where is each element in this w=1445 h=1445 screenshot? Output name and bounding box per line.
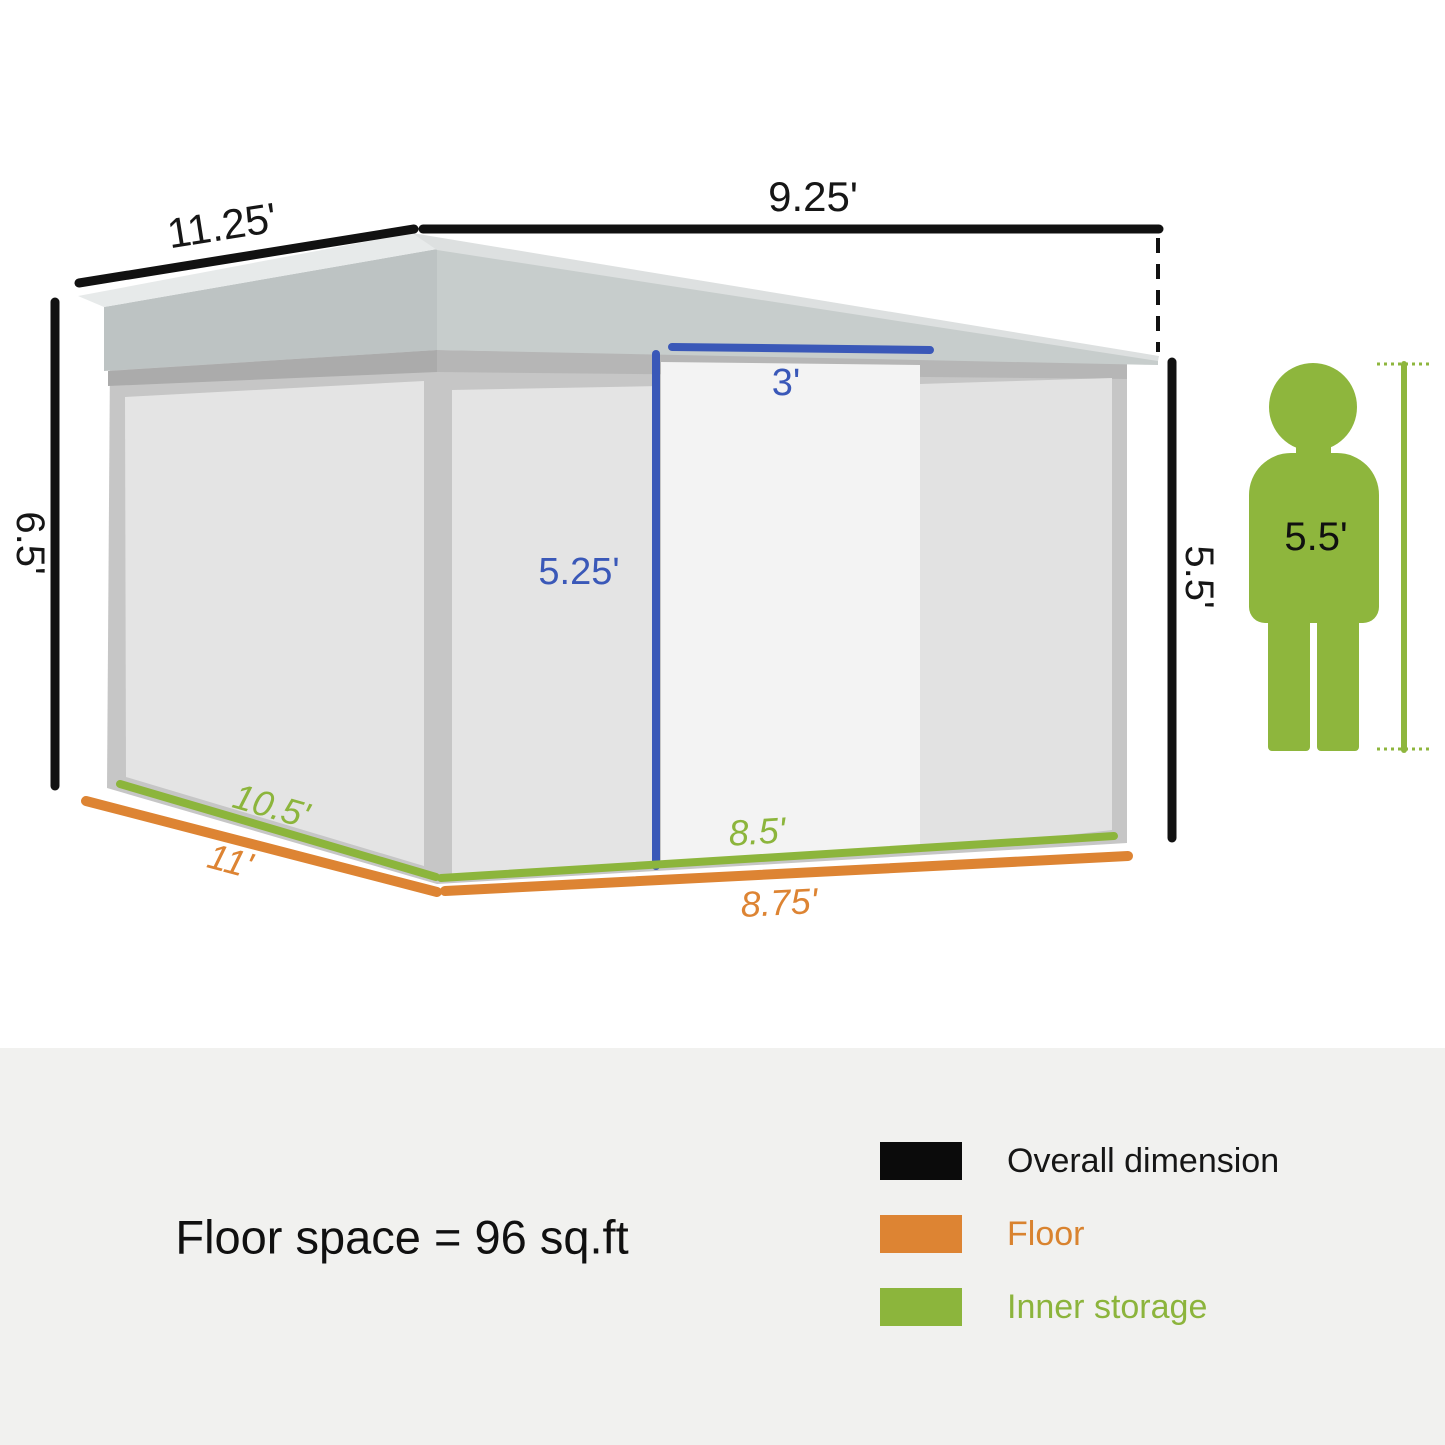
legend-label-inner-storage: Inner storage	[1007, 1290, 1207, 1324]
legend-swatch-floor	[880, 1215, 962, 1253]
legend-swatch-overall-dimension	[880, 1142, 962, 1180]
legend: Overall dimension Floor Inner storage	[880, 1142, 1279, 1326]
dim-label-height-left: 6.5'	[10, 511, 50, 574]
person-height-label: 5.5'	[1284, 517, 1347, 557]
shed-front-wall-panel-right	[920, 378, 1112, 852]
legend-row-floor: Floor	[880, 1215, 1279, 1253]
legend-label-overall-dimension: Overall dimension	[1007, 1144, 1279, 1178]
dim-label-door-height: 5.25'	[538, 553, 619, 591]
dim-label-roof-right: 9.25'	[768, 176, 858, 218]
shed-front-wall-panel-left	[452, 386, 660, 875]
dim-label-inner-right: 8.5'	[727, 812, 786, 851]
dim-label-door-width: 3'	[772, 364, 800, 402]
legend-row-inner-storage: Inner storage	[880, 1288, 1279, 1326]
footer-panel: Floor space = 96 sq.ft Overall dimension…	[0, 1048, 1445, 1445]
person-left-leg	[1268, 612, 1310, 751]
legend-label-floor: Floor	[1007, 1217, 1084, 1251]
dim-label-height-right: 5.5'	[1179, 545, 1219, 608]
shed-sliding-door	[661, 362, 920, 865]
floor-space-text: Floor space = 96 sq.ft	[175, 1210, 628, 1265]
dim-label-floor-right: 8.75'	[740, 883, 819, 923]
shed-dimension-diagram: 11.25' 9.25' 6.5' 5.5' 3' 5.25' 10.5' 11…	[0, 0, 1445, 1445]
legend-swatch-inner-storage	[880, 1288, 962, 1326]
legend-row-overall: Overall dimension	[880, 1142, 1279, 1180]
person-head	[1269, 363, 1357, 451]
dim-line-door-width	[672, 347, 930, 350]
person-right-leg	[1317, 612, 1359, 751]
